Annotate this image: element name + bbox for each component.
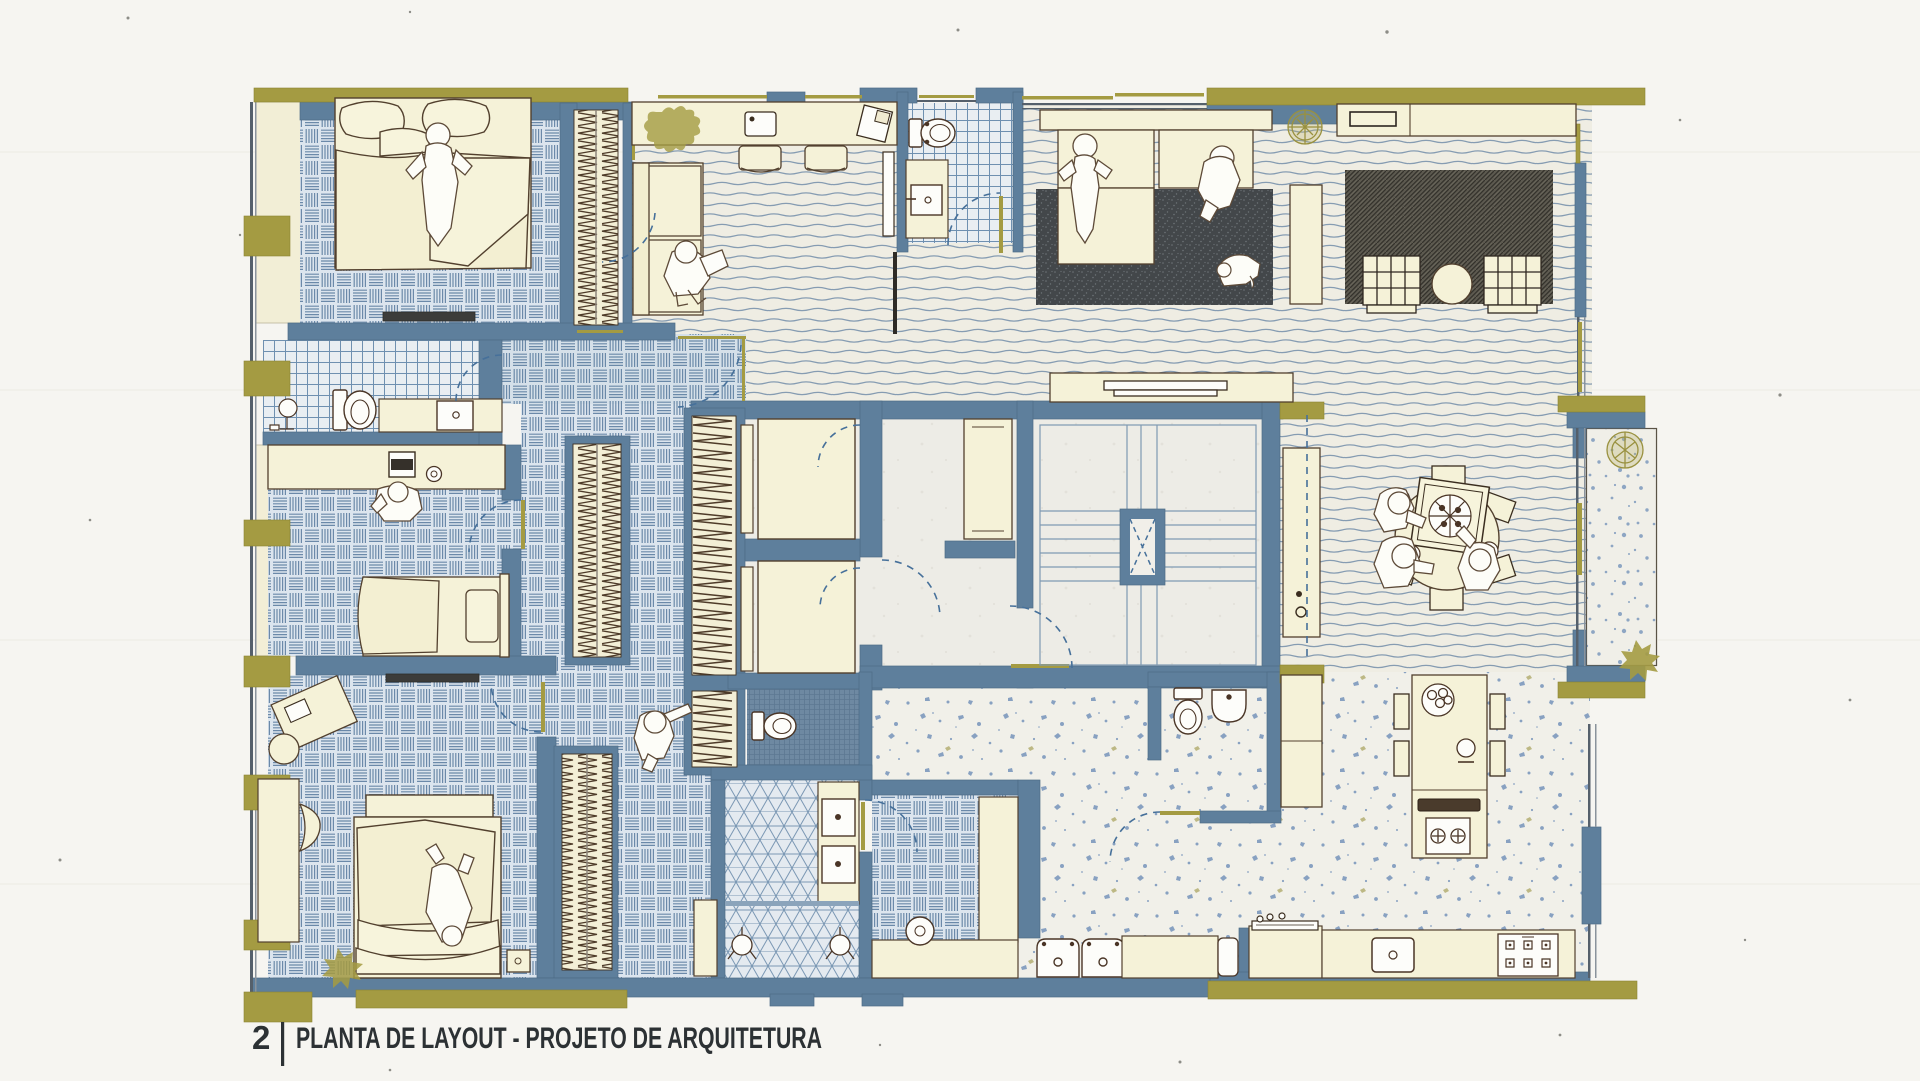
svg-text:PLANTA DE LAYOUT - PROJETO DE: PLANTA DE LAYOUT - PROJETO DE ARQUITETUR…	[296, 1022, 822, 1055]
svg-text:2: 2	[252, 1019, 270, 1056]
